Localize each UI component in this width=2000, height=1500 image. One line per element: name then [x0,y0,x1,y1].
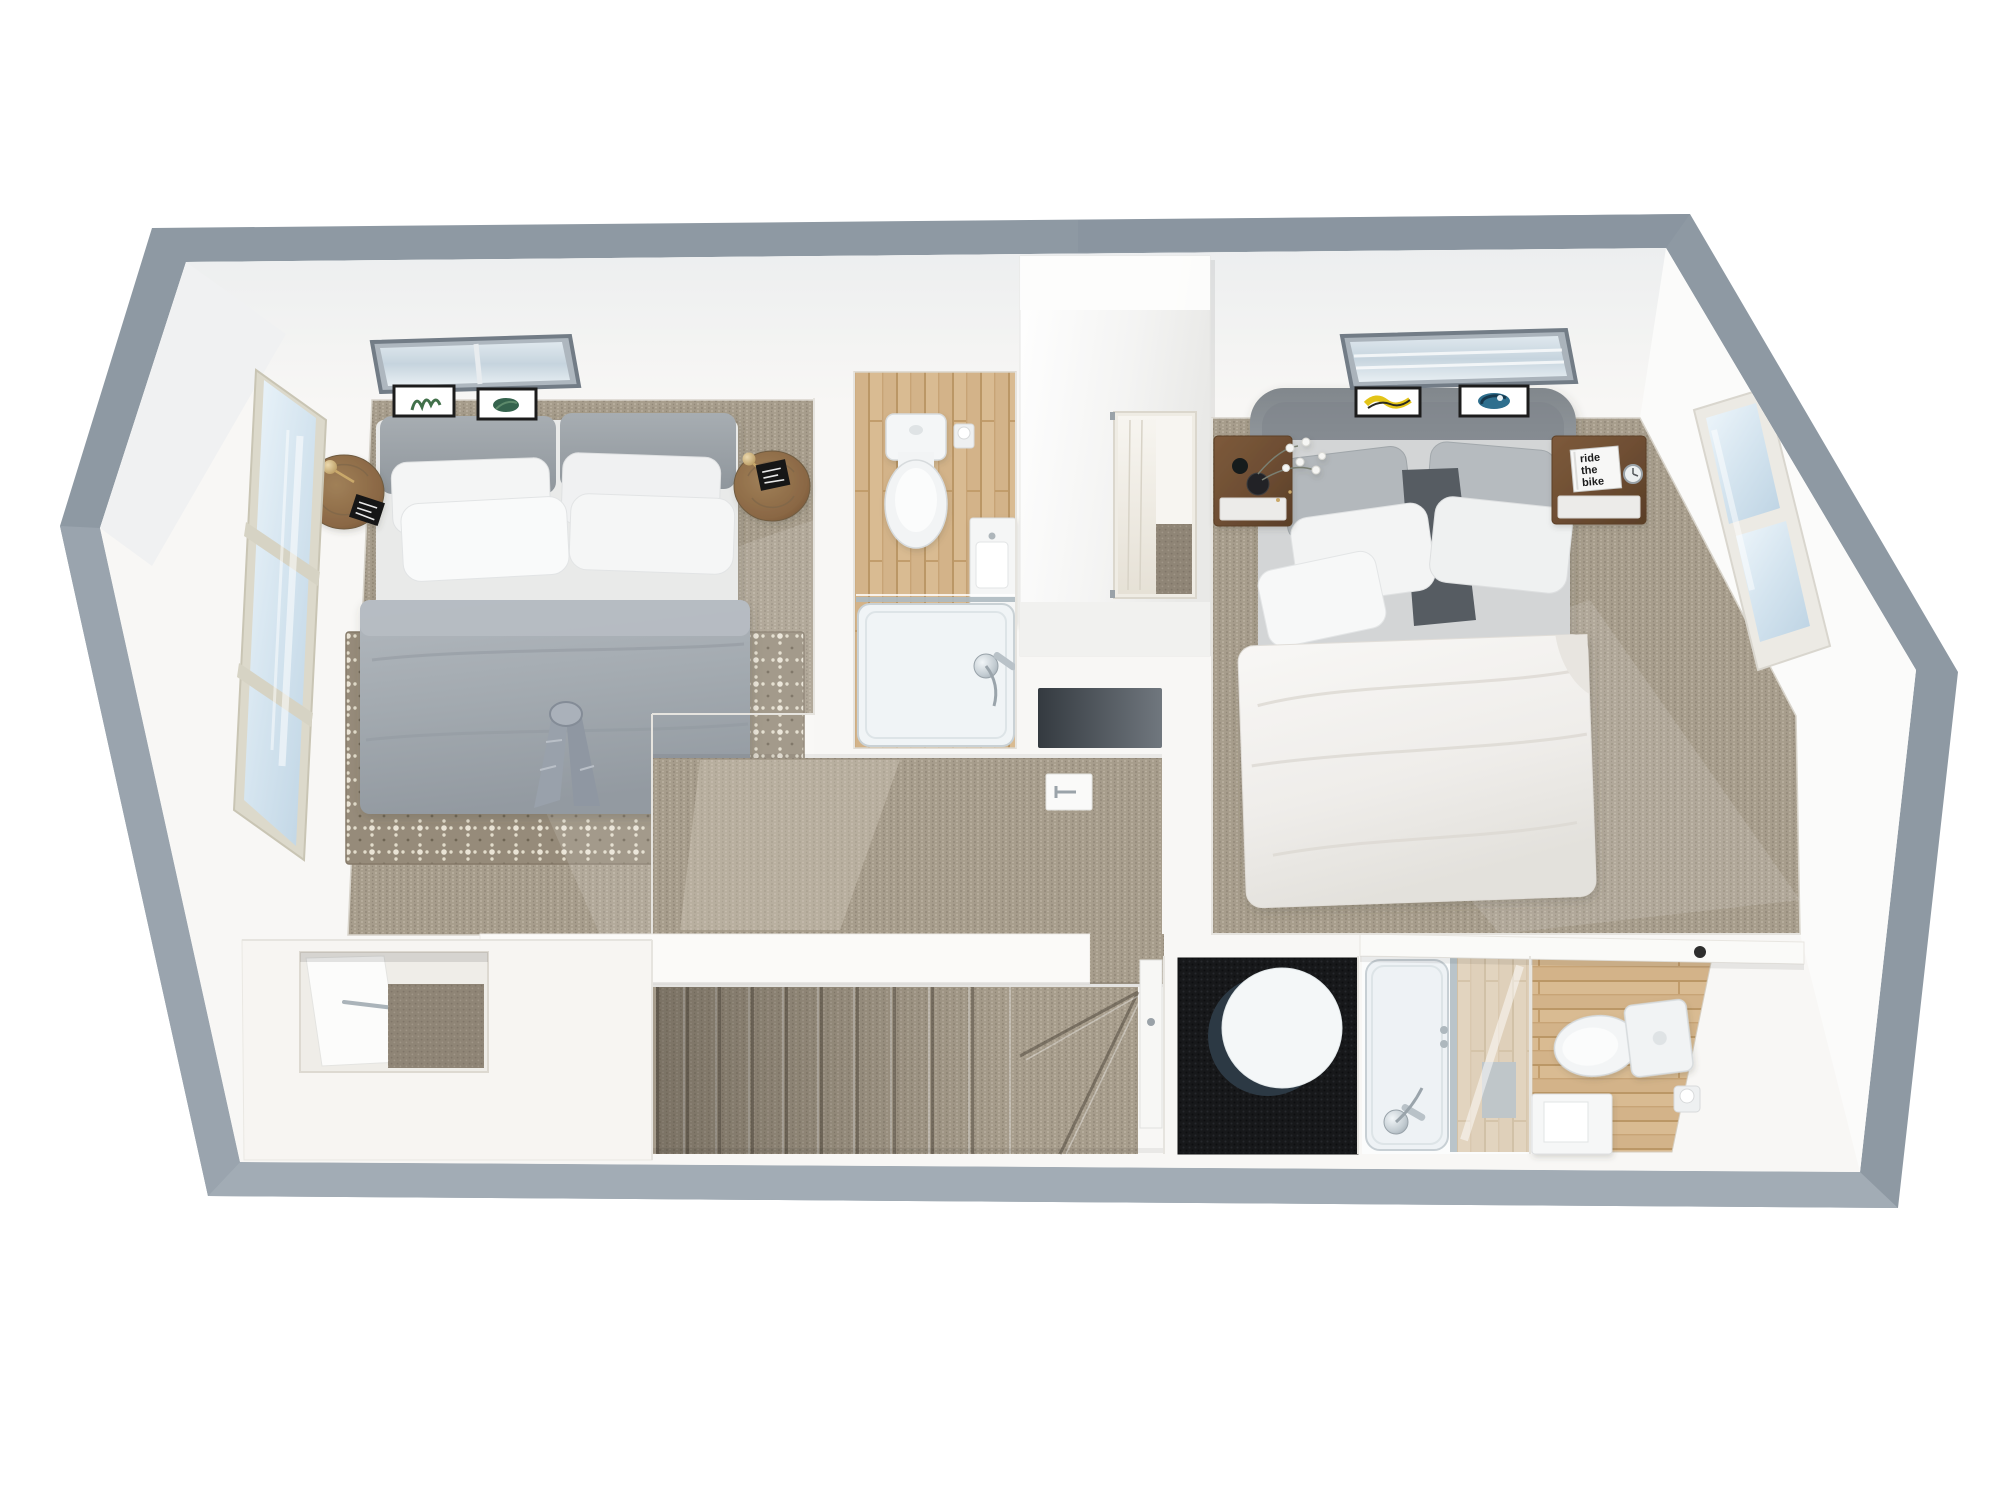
open-door-leaf [306,956,400,1066]
ensuite-bathroom [854,372,1018,748]
toilet [885,414,947,548]
glass-knob [1440,1026,1448,1034]
open-door-leaf [1140,960,1162,1128]
drawer-front [1220,498,1286,520]
nightstand-right-walnut: ride the bike [1552,436,1646,524]
nightstand-round-right [734,451,810,521]
glass-panel-view [1457,958,1530,1152]
basin [1544,1102,1588,1142]
flush-button [909,425,923,435]
glass-screen [856,597,1016,602]
botanical-print [394,386,454,416]
toilet-roll-holder [1674,1086,1700,1112]
glass-knob [1440,1040,1448,1048]
abstract-print-yellow [1356,388,1420,416]
stair-treads [656,987,1012,1154]
door-handle [1147,1018,1155,1026]
store-room [242,940,652,1160]
winder-steps [1012,987,1142,1154]
duvet-fold [360,600,750,636]
brass-lamp [743,453,756,466]
black-vase [1232,458,1248,474]
black-vase [1247,473,1269,495]
shower-room [1362,956,1532,1154]
tap [989,533,996,540]
mirror-panel [1118,416,1156,594]
landing-hallway [652,754,1162,934]
closet-carpet [388,984,484,1068]
closet-carpet [1156,524,1192,594]
pillow [400,496,570,583]
skylight-right [1342,330,1576,388]
counter-hole [1694,946,1706,958]
shower [856,594,1018,746]
round-white-table [1222,968,1342,1088]
basin [976,542,1008,588]
book-text-line1: ride [1579,452,1600,466]
double-bed-left [360,413,750,814]
abstract-print-teal [1460,386,1528,416]
wardrobe-doorway [1110,412,1196,598]
glass-screen-frame [1450,956,1457,1152]
drawer-front [1558,496,1640,518]
book-text-line3: bike [1582,475,1605,489]
wall-cap-top-right [1078,214,1690,252]
vanity-unit [1532,1094,1612,1154]
store-room-doorway [300,952,488,1072]
hinge [1110,590,1115,598]
floor-plan-svg: ride the bike [0,0,2000,1500]
floor-plan-render: ride the bike [0,0,2000,1500]
bedroom-right: ride the bike [1212,330,1830,934]
skylight-left [372,336,579,392]
white-duvet [1238,634,1597,908]
brass-lamp [323,460,337,474]
toilet-roll-holder [954,424,974,448]
pillow [569,493,736,575]
botanical-print [478,389,536,419]
hinge [1110,412,1115,420]
book-ride-the-bike: ride the bike [1570,446,1621,492]
stairwell-void [1038,688,1162,748]
open-door-leaf [1046,774,1092,810]
